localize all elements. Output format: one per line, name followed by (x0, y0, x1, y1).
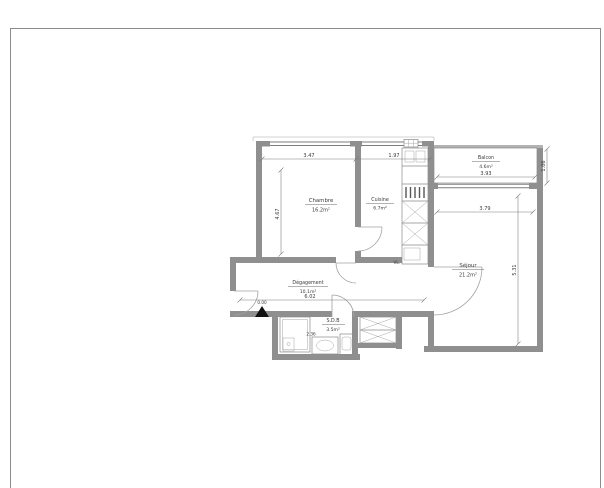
wall-pier (529, 183, 537, 189)
wall-chambre-bottom (256, 257, 336, 263)
dim-balcon-width: 3.93 (480, 171, 491, 177)
room-name: Dégagement (292, 279, 323, 286)
dim-top-cuisine: 1.97 (388, 153, 399, 159)
dim-sejour-width: 3.79 (479, 206, 490, 212)
floor-plan-page: 0.00 3.47 1.97 4.67 3.93 1.06 3.79 5.31 … (0, 0, 604, 488)
wall-right (537, 145, 543, 352)
room-area: 4.6m² (479, 164, 493, 170)
entry-level-marker: 0.00 (255, 300, 269, 317)
wall-sejour-left-lower (428, 311, 434, 352)
wall-bath-top (278, 311, 332, 317)
toilet-icon (340, 334, 353, 355)
door-cuisine (358, 227, 382, 251)
wall-pier (428, 183, 438, 189)
balcony-top-edge (434, 145, 543, 148)
room-area: 3.5m² (326, 327, 340, 333)
wall-sejour-bottom (424, 346, 543, 352)
dim-sejour-depth: 5.31 (512, 264, 518, 275)
wall-wing-left (230, 257, 236, 291)
room-chambre: Chambre 16.2m² (305, 198, 337, 214)
door-bathroom (332, 295, 354, 317)
wall-hall-bottom (230, 311, 278, 317)
room-area: 16.2m² (312, 208, 330, 214)
room-name: Séjour (459, 262, 477, 269)
dim-balcon-depth: 1.06 (541, 160, 547, 171)
wall-chambre-cuisine (355, 141, 361, 227)
wall-shaft-bottom (358, 343, 402, 348)
dim-chambre-depth: 4.67 (275, 208, 281, 219)
duct-label: VL. (393, 260, 400, 265)
wall-stub (355, 251, 361, 263)
room-name: Chambre (309, 198, 334, 204)
kitchen-counter (402, 148, 428, 264)
room-sejour: Séjour 21.2m² (452, 262, 484, 279)
dim-top-chambre: 3.47 (303, 153, 314, 159)
wall-vent-grid-icon (404, 140, 418, 148)
room-balcon: Balcon 4.6m² (472, 155, 500, 170)
wall-bath-left (272, 311, 278, 360)
wall-left (256, 141, 262, 263)
dim-sdb-width: 2.36 (306, 332, 316, 337)
floor-plan-drawing: 0.00 3.47 1.97 4.67 3.93 1.06 3.79 5.31 … (0, 0, 604, 488)
vent-shaft-icon (360, 317, 396, 343)
room-cuisine: Cuisine 6.7m² (366, 197, 394, 212)
room-area: 10.1m² (300, 289, 317, 295)
room-name: Balcon (478, 155, 494, 161)
entry-level-label: 0.00 (257, 300, 267, 305)
room-area: 21.2m² (459, 273, 477, 279)
room-area: 6.7m² (373, 206, 387, 212)
washbasin-icon (312, 337, 338, 354)
room-name: S.D.B (326, 318, 339, 324)
door-chambre (336, 263, 356, 283)
room-sdb: S.D.B 3.5m² (322, 318, 345, 333)
room-name: Cuisine (371, 197, 389, 203)
room-degagement: Dégagement 10.1m² (288, 279, 328, 295)
